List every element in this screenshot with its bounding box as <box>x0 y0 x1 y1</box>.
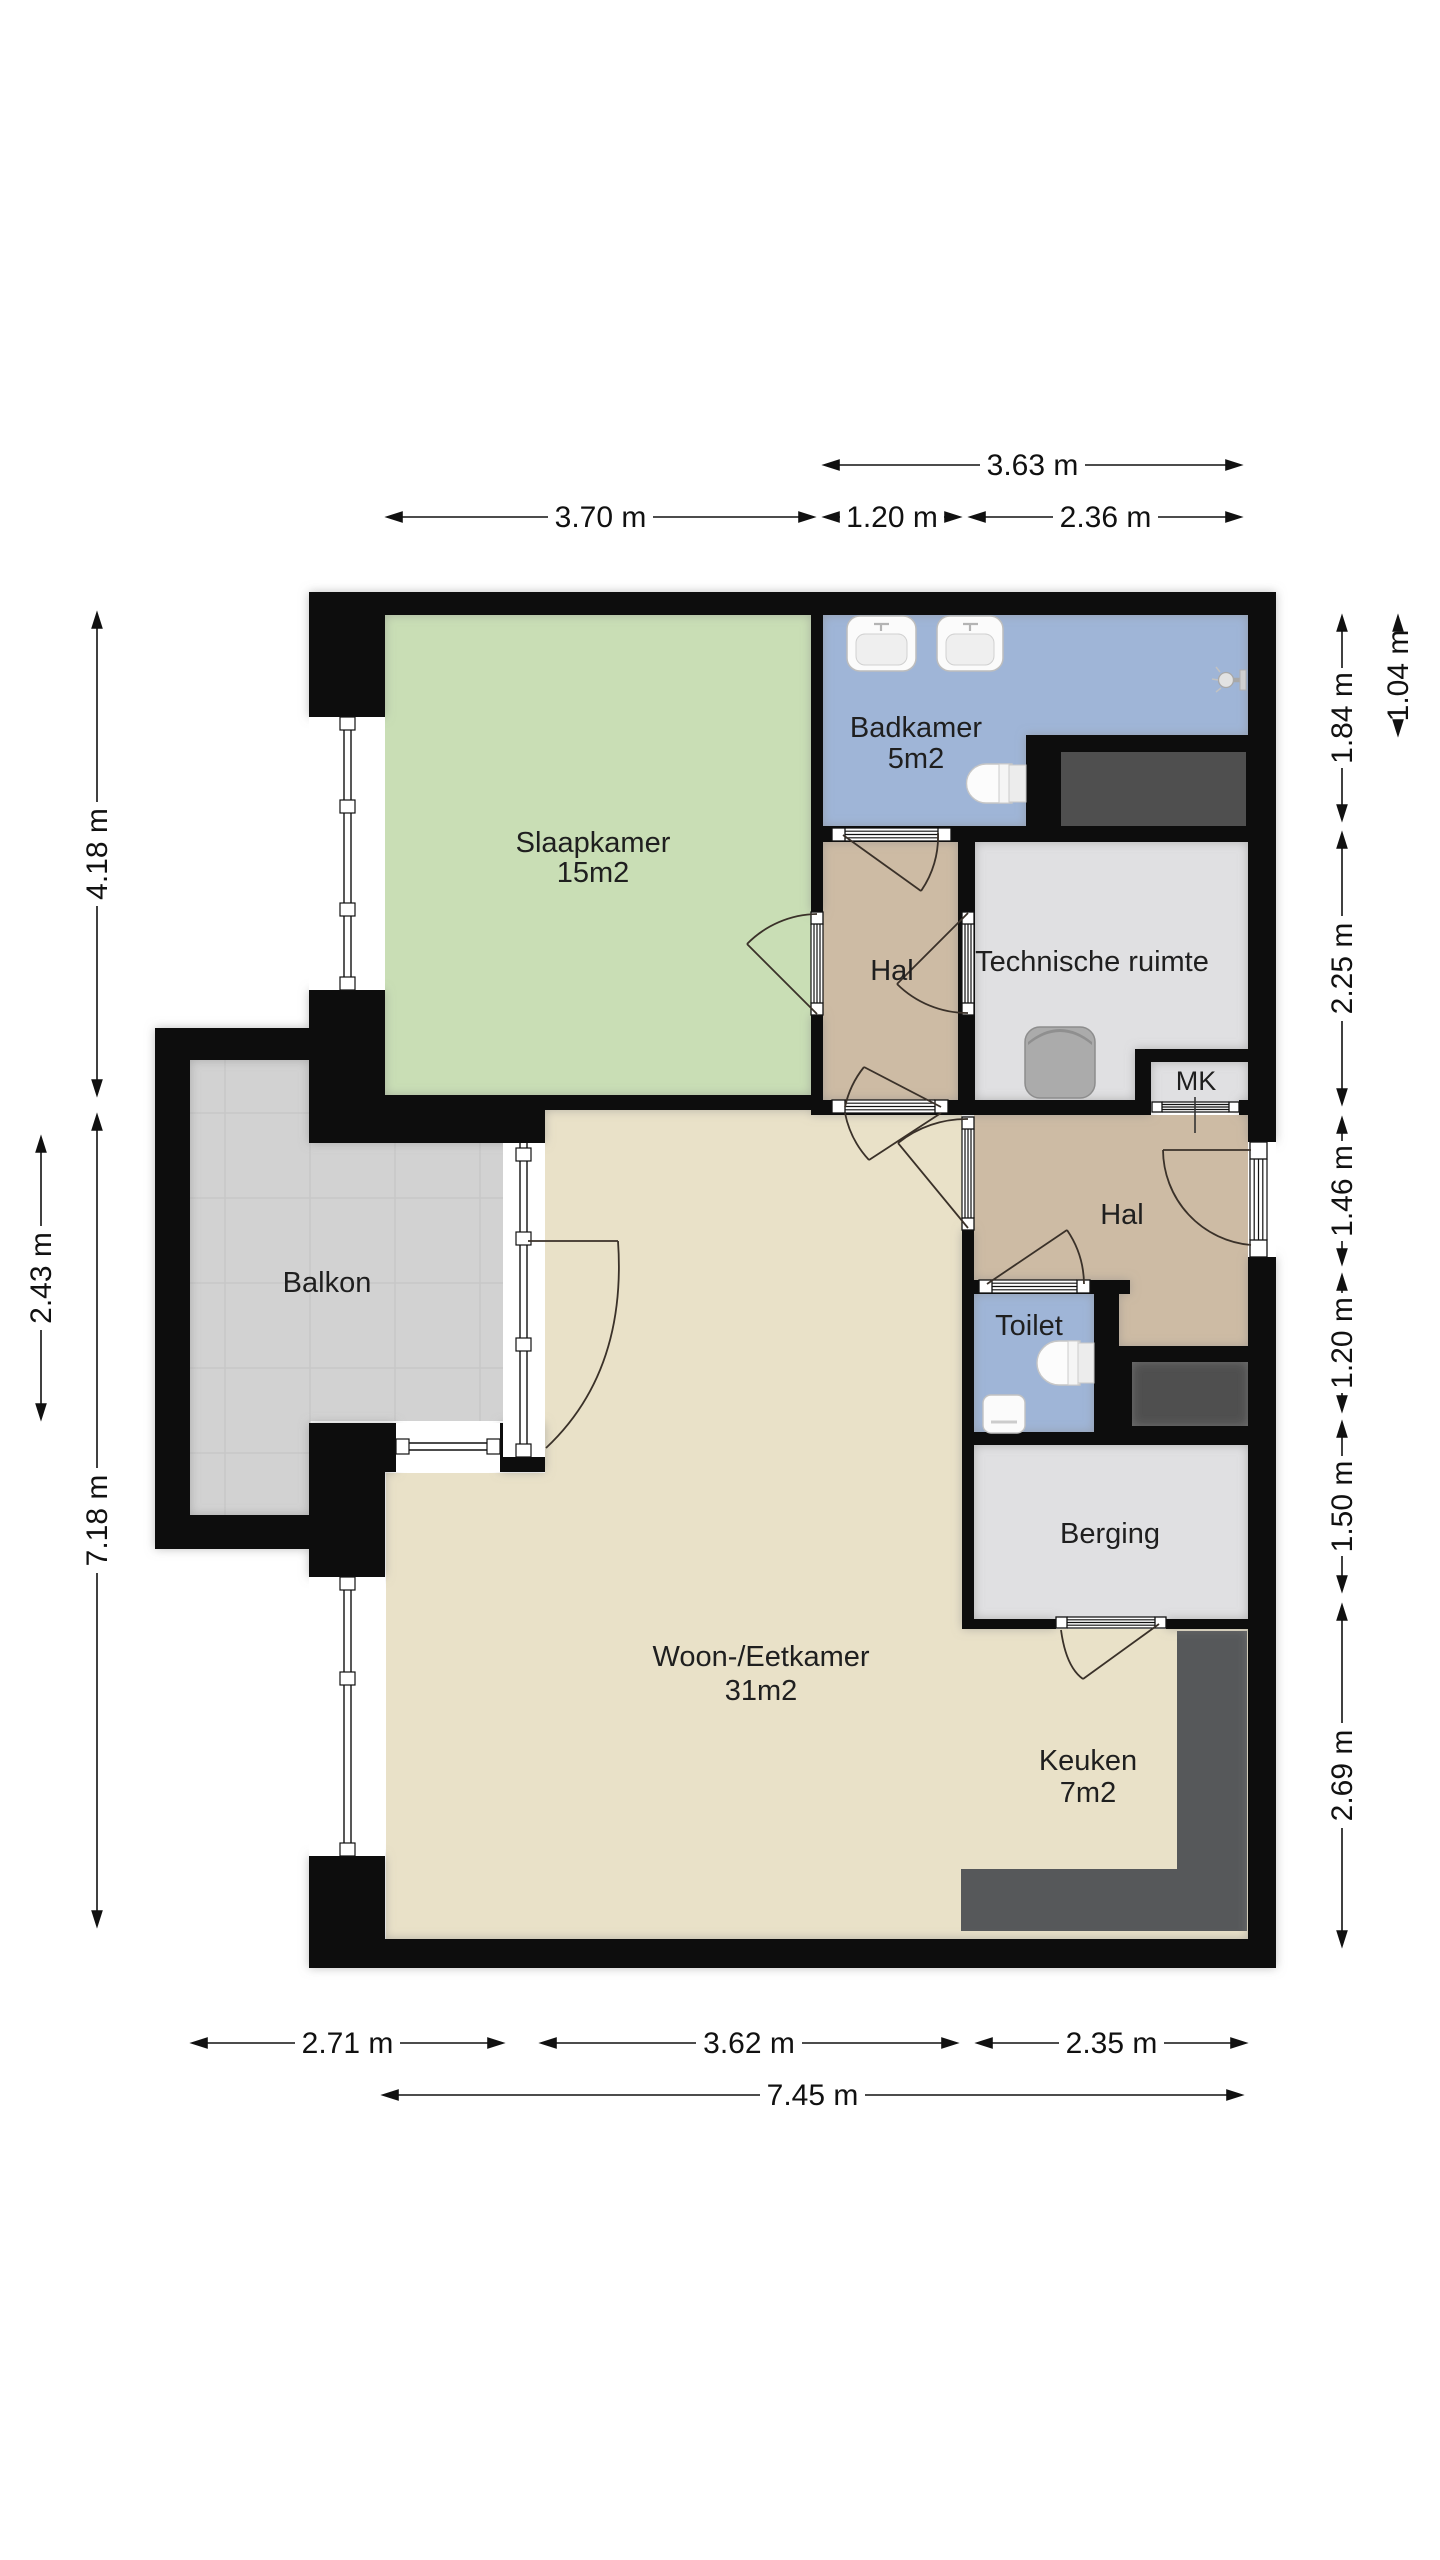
svg-text:MK: MK <box>1176 1066 1217 1096</box>
svg-text:Slaapkamer: Slaapkamer <box>516 827 671 859</box>
svg-text:Keuken: Keuken <box>1039 1745 1137 1777</box>
svg-text:1.20 m: 1.20 m <box>846 501 938 534</box>
svg-text:1.04 m: 1.04 m <box>1382 630 1415 722</box>
svg-text:Woon-/Eetkamer: Woon-/Eetkamer <box>652 1641 869 1673</box>
svg-text:Berging: Berging <box>1060 1518 1160 1550</box>
svg-text:1.50 m: 1.50 m <box>1326 1461 1359 1553</box>
svg-text:1.84 m: 1.84 m <box>1326 672 1359 764</box>
svg-text:2.69 m: 2.69 m <box>1326 1730 1359 1822</box>
svg-text:2.25 m: 2.25 m <box>1326 923 1359 1015</box>
svg-text:7.45 m: 7.45 m <box>767 2079 859 2112</box>
svg-text:Toilet: Toilet <box>995 1310 1063 1342</box>
svg-text:Badkamer: Badkamer <box>850 712 983 744</box>
svg-text:Balkon: Balkon <box>283 1267 372 1299</box>
svg-text:2.43 m: 2.43 m <box>25 1232 58 1324</box>
svg-text:1.46 m: 1.46 m <box>1326 1145 1359 1237</box>
svg-text:15m2: 15m2 <box>557 857 630 889</box>
svg-text:Technische ruimte: Technische ruimte <box>975 946 1209 978</box>
svg-text:31m2: 31m2 <box>725 1675 798 1707</box>
svg-text:Hal: Hal <box>1100 1199 1144 1231</box>
svg-text:Hal: Hal <box>870 955 914 987</box>
svg-text:3.62 m: 3.62 m <box>703 2027 795 2060</box>
svg-text:2.36 m: 2.36 m <box>1060 501 1152 534</box>
svg-text:7.18 m: 7.18 m <box>81 1475 114 1567</box>
svg-text:2.35 m: 2.35 m <box>1066 2027 1158 2060</box>
svg-text:3.70 m: 3.70 m <box>555 501 647 534</box>
svg-text:4.18 m: 4.18 m <box>81 808 114 900</box>
svg-text:1.20 m: 1.20 m <box>1326 1297 1359 1389</box>
svg-text:2.71 m: 2.71 m <box>302 2027 394 2060</box>
svg-text:3.63 m: 3.63 m <box>987 449 1079 482</box>
svg-text:5m2: 5m2 <box>888 743 944 775</box>
svg-text:7m2: 7m2 <box>1060 1777 1116 1809</box>
